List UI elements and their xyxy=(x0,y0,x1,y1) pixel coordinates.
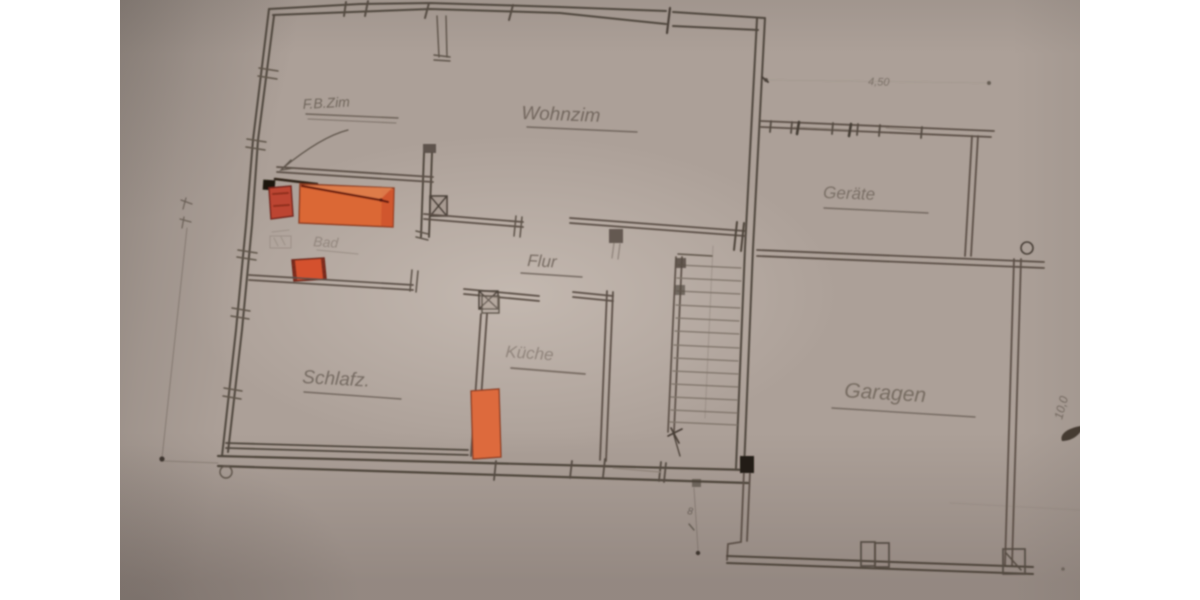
svg-text:Flur: Flur xyxy=(527,251,559,272)
svg-text:4,50: 4,50 xyxy=(868,76,891,89)
svg-text:Garagen: Garagen xyxy=(844,379,927,407)
svg-text:Geräte: Geräte xyxy=(823,183,876,204)
svg-text:Schlafz.: Schlafz. xyxy=(302,367,371,392)
svg-text:Küche: Küche xyxy=(505,342,554,364)
svg-text:8: 8 xyxy=(687,506,694,518)
svg-text:10,0: 10,0 xyxy=(1051,394,1071,420)
svg-text:F.B.Zim: F.B.Zim xyxy=(302,93,350,111)
svg-text:Bad: Bad xyxy=(313,233,340,251)
svg-text:Wohnzim: Wohnzim xyxy=(521,103,601,127)
